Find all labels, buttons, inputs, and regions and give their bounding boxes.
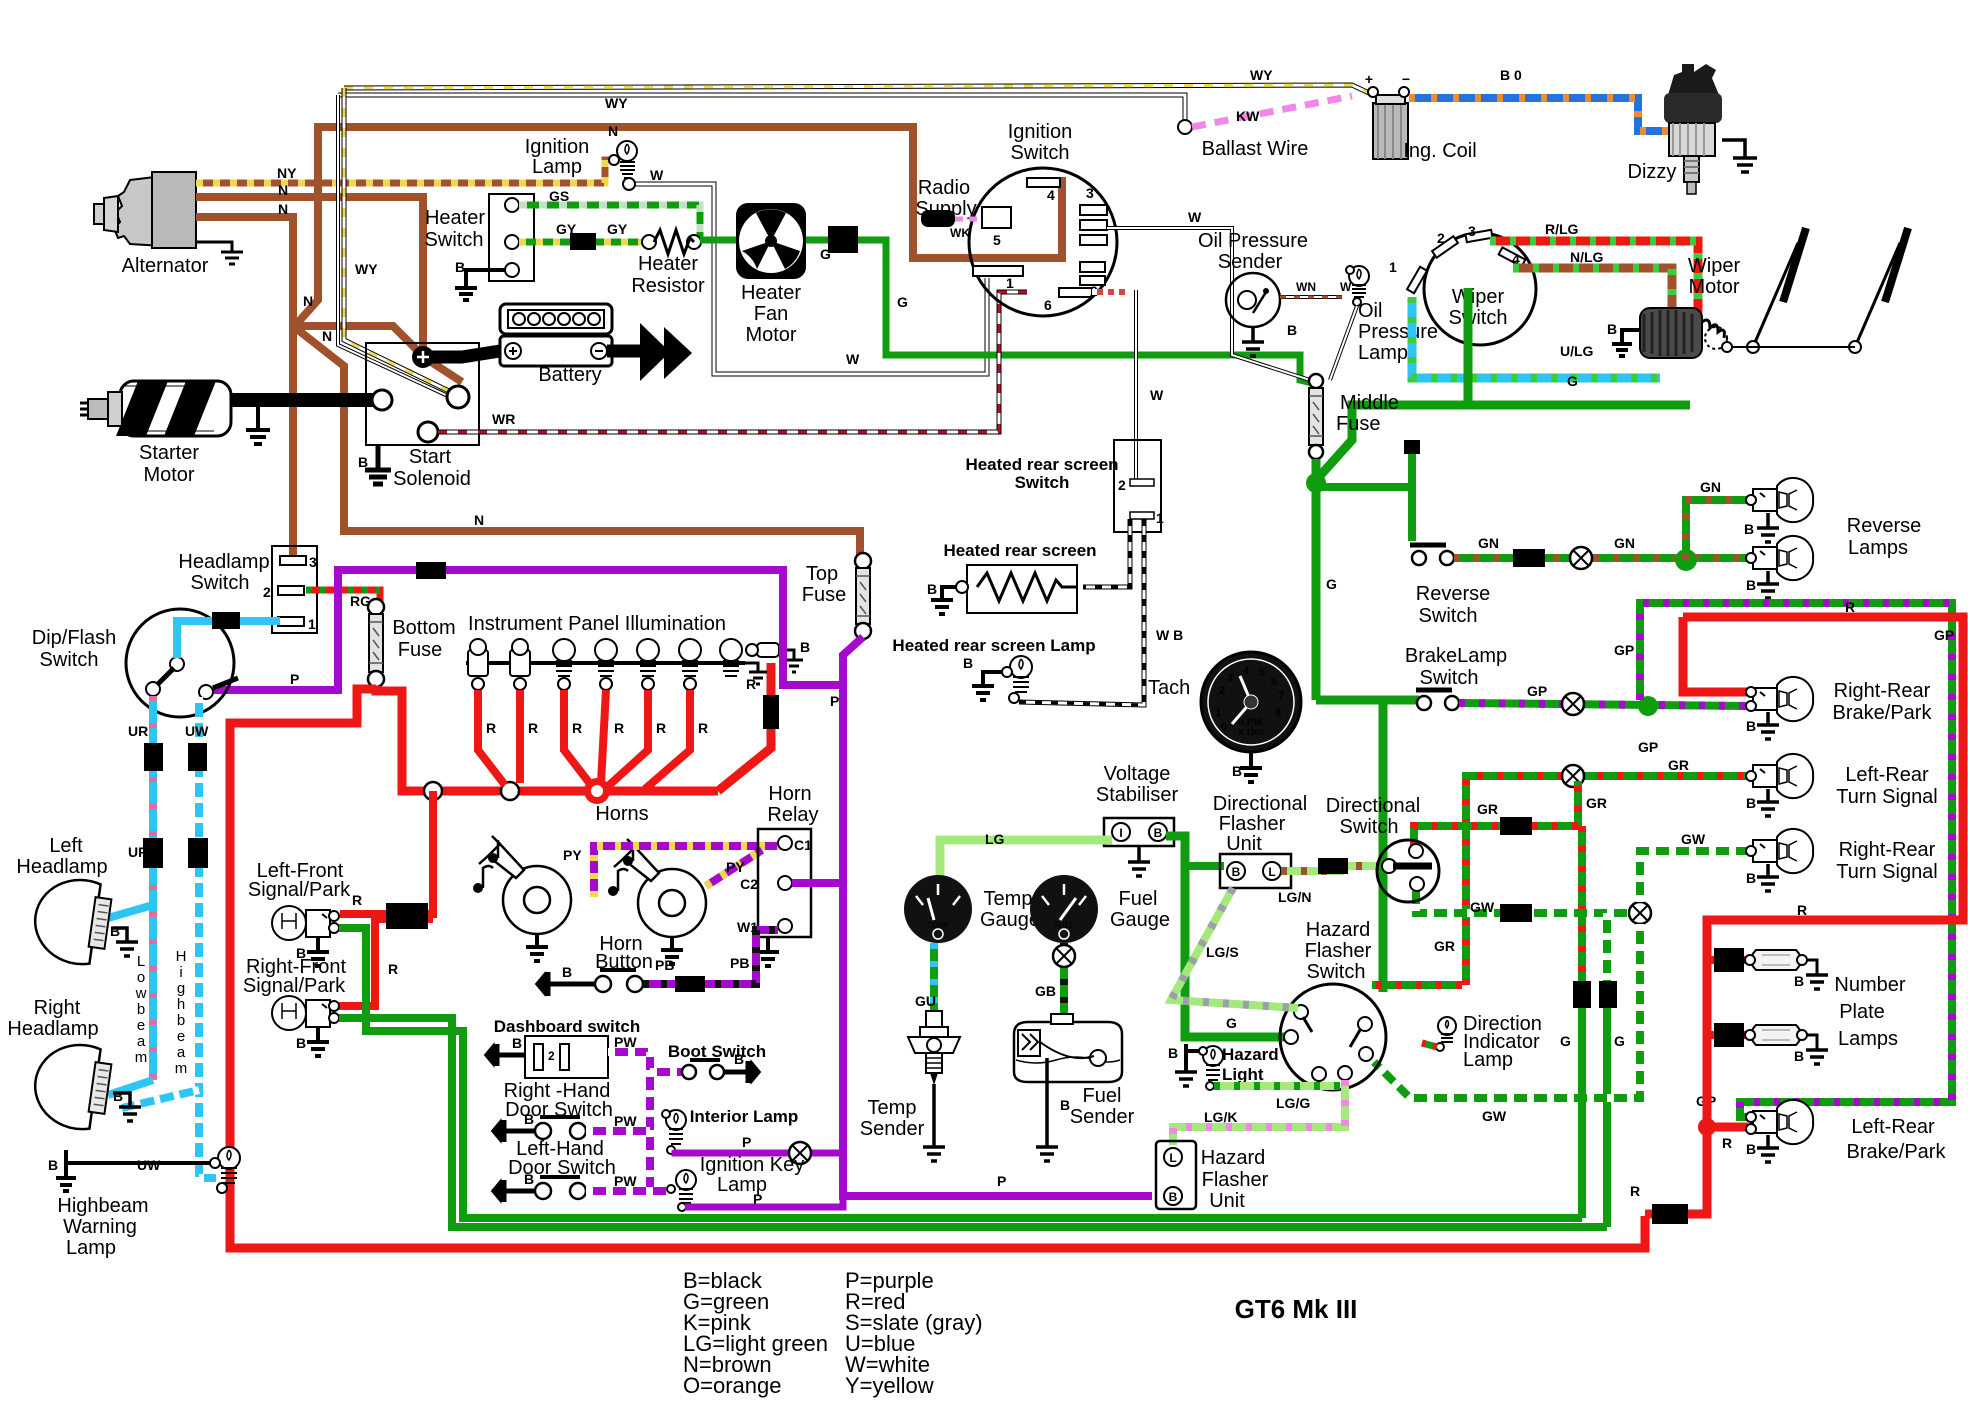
svg-text:Number: Number bbox=[1834, 974, 1905, 996]
svg-text:2: 2 bbox=[263, 584, 271, 600]
svg-text:GR: GR bbox=[1668, 757, 1689, 773]
svg-text:Temp: Temp bbox=[868, 1097, 917, 1119]
svg-text:Highbeam: Highbeam bbox=[57, 1195, 148, 1217]
svg-text:PB: PB bbox=[655, 957, 674, 973]
svg-text:GU: GU bbox=[915, 993, 936, 1009]
svg-text:B 0: B 0 bbox=[1500, 67, 1522, 83]
svg-text:R: R bbox=[528, 720, 538, 736]
svg-text:Ing. Coil: Ing. Coil bbox=[1403, 140, 1476, 162]
svg-text:WY: WY bbox=[605, 95, 628, 111]
svg-text:Reverse: Reverse bbox=[1847, 515, 1921, 537]
svg-text:Fuse: Fuse bbox=[1336, 413, 1380, 435]
svg-text:W: W bbox=[1188, 209, 1202, 225]
svg-text:Warning: Warning bbox=[63, 1216, 137, 1238]
svg-text:R: R bbox=[1797, 902, 1807, 918]
svg-text:N: N bbox=[303, 293, 313, 309]
svg-text:B: B bbox=[562, 964, 572, 980]
svg-text:B: B bbox=[1168, 1045, 1178, 1061]
svg-text:B: B bbox=[1232, 865, 1241, 879]
svg-text:R/LG: R/LG bbox=[1545, 221, 1579, 237]
svg-text:Heated rear screen: Heated rear screen bbox=[965, 455, 1118, 474]
svg-text:Switch: Switch bbox=[1449, 307, 1508, 329]
svg-text:WN: WN bbox=[1296, 280, 1316, 294]
svg-text:LG/N: LG/N bbox=[1278, 889, 1311, 905]
svg-text:R: R bbox=[388, 961, 398, 977]
svg-text:Reverse: Reverse bbox=[1416, 583, 1490, 605]
svg-text:Switch: Switch bbox=[425, 229, 484, 251]
svg-text:B: B bbox=[48, 1157, 58, 1173]
svg-text:Interior Lamp: Interior Lamp bbox=[690, 1107, 799, 1126]
svg-text:Hazard: Hazard bbox=[1306, 919, 1370, 941]
svg-text:Heater: Heater bbox=[638, 253, 698, 275]
svg-text:GB: GB bbox=[1035, 983, 1056, 999]
svg-text:8: 8 bbox=[1275, 707, 1281, 719]
svg-text:Instrument Panel Illumination: Instrument Panel Illumination bbox=[468, 613, 726, 635]
svg-text:Fan: Fan bbox=[754, 303, 788, 325]
svg-text:2: 2 bbox=[548, 1049, 555, 1063]
svg-text:Start: Start bbox=[409, 446, 452, 468]
svg-text:B: B bbox=[524, 1171, 534, 1187]
svg-text:Dizzy: Dizzy bbox=[1628, 161, 1677, 183]
svg-text:R: R bbox=[656, 720, 666, 736]
svg-text:G: G bbox=[820, 246, 831, 262]
svg-text:Motor: Motor bbox=[143, 464, 194, 486]
svg-text:R: R bbox=[1845, 599, 1855, 615]
svg-text:GR: GR bbox=[1434, 938, 1455, 954]
svg-text:3: 3 bbox=[1468, 223, 1476, 239]
svg-text:W B: W B bbox=[1156, 627, 1183, 643]
svg-text:Stabiliser: Stabiliser bbox=[1096, 784, 1179, 806]
svg-text:B: B bbox=[296, 1035, 306, 1051]
svg-text:R: R bbox=[698, 720, 708, 736]
svg-text:Directional: Directional bbox=[1213, 793, 1307, 815]
svg-text:Right-Rear: Right-Rear bbox=[1834, 680, 1931, 702]
svg-text:Hazard: Hazard bbox=[1222, 1045, 1279, 1064]
svg-text:N: N bbox=[278, 201, 288, 217]
svg-text:B: B bbox=[1746, 577, 1756, 593]
svg-text:0: 0 bbox=[1221, 721, 1227, 733]
svg-text:2: 2 bbox=[1219, 685, 1225, 697]
svg-text:X 1000: X 1000 bbox=[1238, 728, 1264, 737]
svg-text:P: P bbox=[997, 1173, 1006, 1189]
svg-text:B: B bbox=[110, 923, 120, 939]
svg-text:Resistor: Resistor bbox=[631, 275, 705, 297]
svg-text:Switch: Switch bbox=[1011, 142, 1070, 164]
svg-text:4: 4 bbox=[1047, 187, 1055, 203]
svg-text:R.P.M.: R.P.M. bbox=[1238, 717, 1264, 727]
svg-text:B: B bbox=[1287, 322, 1297, 338]
svg-text:N: N bbox=[322, 328, 332, 344]
svg-text:B: B bbox=[927, 581, 937, 597]
svg-text:R: R bbox=[572, 720, 582, 736]
svg-text:Signal/Park: Signal/Park bbox=[248, 879, 351, 901]
svg-text:Heated rear screen: Heated rear screen bbox=[943, 541, 1096, 560]
svg-text:B: B bbox=[512, 1035, 522, 1051]
svg-text:3: 3 bbox=[1086, 185, 1094, 201]
svg-text:Flasher: Flasher bbox=[1202, 1169, 1269, 1191]
svg-text:Turn Signal: Turn Signal bbox=[1836, 861, 1938, 883]
svg-text:G: G bbox=[1226, 1015, 1237, 1031]
svg-text:GN: GN bbox=[1478, 535, 1499, 551]
svg-text:1: 1 bbox=[1215, 707, 1221, 719]
svg-text:B: B bbox=[113, 1088, 123, 1104]
svg-text:GY: GY bbox=[607, 221, 628, 237]
svg-text:L: L bbox=[1268, 865, 1275, 879]
svg-text:3: 3 bbox=[1227, 672, 1233, 684]
svg-text:Headlamp: Headlamp bbox=[16, 856, 107, 878]
svg-text:W: W bbox=[846, 351, 860, 367]
svg-text:−: − bbox=[1402, 71, 1410, 87]
svg-text:Brake/Park: Brake/Park bbox=[1847, 1141, 1947, 1163]
svg-text:Switch: Switch bbox=[191, 572, 250, 594]
svg-text:B: B bbox=[1744, 521, 1754, 537]
svg-text:GS: GS bbox=[549, 188, 569, 204]
svg-text:Right: Right bbox=[34, 997, 81, 1019]
svg-text:GW: GW bbox=[1482, 1108, 1507, 1124]
svg-text:5: 5 bbox=[993, 232, 1001, 248]
svg-text:Battery: Battery bbox=[538, 364, 601, 386]
svg-text:Flasher: Flasher bbox=[1219, 813, 1286, 835]
svg-text:B: B bbox=[1232, 763, 1242, 779]
svg-text:LG/G: LG/G bbox=[1276, 1095, 1310, 1111]
svg-text:Voltage: Voltage bbox=[1104, 763, 1171, 785]
svg-text:Signal/Park: Signal/Park bbox=[243, 975, 346, 997]
svg-text:Unit: Unit bbox=[1209, 1190, 1245, 1212]
svg-text:Fuel: Fuel bbox=[1083, 1085, 1122, 1107]
svg-text:PB: PB bbox=[730, 955, 749, 971]
svg-text:Ignition: Ignition bbox=[525, 136, 590, 158]
svg-text:2: 2 bbox=[1118, 477, 1126, 493]
svg-text:Ignition Key: Ignition Key bbox=[700, 1154, 805, 1176]
svg-text:L: L bbox=[1169, 1151, 1176, 1165]
svg-text:B: B bbox=[1060, 1097, 1070, 1113]
svg-text:B: B bbox=[1794, 1048, 1804, 1064]
svg-text:Switch: Switch bbox=[1420, 667, 1479, 689]
svg-text:PY: PY bbox=[563, 847, 582, 863]
svg-text:C1: C1 bbox=[794, 837, 812, 853]
svg-text:Sender: Sender bbox=[1218, 251, 1283, 273]
svg-text:Switch: Switch bbox=[1340, 816, 1399, 838]
svg-text:G: G bbox=[1326, 576, 1337, 592]
svg-text:B: B bbox=[455, 259, 465, 275]
svg-text:GN: GN bbox=[1614, 535, 1635, 551]
svg-text:C2: C2 bbox=[740, 876, 758, 892]
svg-text:GP: GP bbox=[1527, 683, 1547, 699]
svg-text:Directional: Directional bbox=[1326, 795, 1420, 817]
svg-text:KW: KW bbox=[1236, 108, 1260, 124]
svg-text:PW: PW bbox=[614, 1113, 637, 1129]
svg-text:B: B bbox=[800, 639, 810, 655]
svg-text:Motor: Motor bbox=[745, 324, 796, 346]
svg-text:BrakeLamp: BrakeLamp bbox=[1405, 645, 1507, 667]
svg-text:Fuse: Fuse bbox=[802, 584, 846, 606]
svg-text:N: N bbox=[474, 512, 484, 528]
svg-text:UR: UR bbox=[128, 723, 148, 739]
svg-text:LG/S: LG/S bbox=[1206, 944, 1239, 960]
svg-text:R: R bbox=[746, 676, 756, 692]
svg-text:Plate: Plate bbox=[1839, 1001, 1885, 1023]
svg-text:Lamps: Lamps bbox=[1838, 1028, 1898, 1050]
svg-text:GR: GR bbox=[1586, 795, 1607, 811]
svg-text:PW: PW bbox=[614, 1173, 637, 1189]
svg-text:B: B bbox=[1746, 870, 1756, 886]
svg-text:P: P bbox=[290, 671, 299, 687]
svg-text:GP: GP bbox=[1934, 627, 1954, 643]
svg-text:Solenoid: Solenoid bbox=[393, 468, 471, 490]
svg-text:6: 6 bbox=[1044, 297, 1052, 313]
svg-text:Tach: Tach bbox=[1148, 677, 1190, 699]
svg-text:GP: GP bbox=[1614, 642, 1634, 658]
svg-text:B: B bbox=[1154, 826, 1163, 840]
svg-text:N: N bbox=[278, 182, 288, 198]
svg-text:B: B bbox=[734, 1051, 744, 1067]
svg-text:P: P bbox=[830, 693, 839, 709]
svg-text:G: G bbox=[1560, 1033, 1571, 1049]
svg-text:Sender: Sender bbox=[1070, 1106, 1135, 1128]
svg-text:GT6 Mk III: GT6 Mk III bbox=[1235, 1294, 1358, 1324]
svg-text:Left-Rear: Left-Rear bbox=[1845, 764, 1929, 786]
svg-text:B: B bbox=[1169, 1190, 1178, 1204]
svg-text:Hazard: Hazard bbox=[1201, 1147, 1265, 1169]
svg-text:GN: GN bbox=[1700, 479, 1721, 495]
svg-text:1: 1 bbox=[1389, 259, 1397, 275]
svg-text:P: P bbox=[742, 1134, 751, 1150]
svg-text:GY: GY bbox=[556, 221, 577, 237]
svg-text:I: I bbox=[1119, 826, 1122, 840]
svg-text:5: 5 bbox=[1259, 667, 1265, 679]
svg-text:Wiper: Wiper bbox=[1452, 286, 1505, 308]
svg-text:Oil Pressure: Oil Pressure bbox=[1198, 230, 1308, 252]
svg-text:WY: WY bbox=[1250, 67, 1273, 83]
svg-text:Dip/Flash: Dip/Flash bbox=[32, 627, 116, 649]
svg-text:Gauge: Gauge bbox=[1110, 909, 1170, 931]
svg-text:PY: PY bbox=[726, 859, 745, 875]
svg-text:Switch: Switch bbox=[1307, 961, 1366, 983]
svg-text:Light: Light bbox=[1222, 1065, 1264, 1084]
svg-text:Heater: Heater bbox=[425, 207, 485, 229]
svg-text:Wiper: Wiper bbox=[1688, 255, 1741, 277]
svg-text:B: B bbox=[524, 1111, 534, 1127]
svg-text:PW: PW bbox=[614, 1034, 637, 1050]
svg-text:Motor: Motor bbox=[1688, 276, 1739, 298]
svg-text:UW: UW bbox=[185, 723, 209, 739]
svg-text:O=orange: O=orange bbox=[683, 1373, 781, 1398]
svg-text:B: B bbox=[1794, 973, 1804, 989]
svg-text:GW: GW bbox=[1470, 899, 1495, 915]
svg-text:Pressure: Pressure bbox=[1358, 321, 1438, 343]
svg-text:Lowbeam: Lowbeam bbox=[133, 953, 150, 1065]
svg-text:Temp: Temp bbox=[984, 888, 1033, 910]
svg-text:Right-Rear: Right-Rear bbox=[1839, 839, 1936, 861]
svg-text:Relay: Relay bbox=[767, 804, 818, 826]
svg-text:Lamp: Lamp bbox=[532, 156, 582, 178]
svg-text:R: R bbox=[1630, 1183, 1640, 1199]
svg-text:WK: WK bbox=[950, 226, 970, 240]
svg-text:Y=yellow: Y=yellow bbox=[845, 1373, 934, 1398]
svg-text:GP: GP bbox=[1638, 739, 1658, 755]
svg-text:Heater: Heater bbox=[741, 282, 801, 304]
svg-text:Radio: Radio bbox=[918, 177, 970, 199]
svg-text:Ignition: Ignition bbox=[1008, 121, 1073, 143]
svg-text:Alternator: Alternator bbox=[122, 255, 209, 277]
svg-text:Bottom: Bottom bbox=[392, 617, 455, 639]
svg-text:Horn: Horn bbox=[768, 783, 811, 805]
svg-text:R: R bbox=[486, 720, 496, 736]
svg-text:1: 1 bbox=[1156, 510, 1164, 526]
svg-text:Starter: Starter bbox=[139, 442, 199, 464]
svg-text:LG: LG bbox=[985, 831, 1005, 847]
svg-text:B: B bbox=[1746, 795, 1756, 811]
svg-text:Left-Rear: Left-Rear bbox=[1851, 1116, 1935, 1138]
svg-text:Lamp: Lamp bbox=[1358, 342, 1408, 364]
svg-text:B: B bbox=[358, 454, 368, 470]
svg-text:Fuse: Fuse bbox=[398, 639, 442, 661]
svg-text:Switch: Switch bbox=[1015, 473, 1070, 492]
svg-text:GW: GW bbox=[1681, 831, 1706, 847]
svg-text:1: 1 bbox=[1006, 275, 1014, 291]
svg-text:Headlamp: Headlamp bbox=[178, 551, 269, 573]
svg-text:LG/K: LG/K bbox=[1204, 1109, 1237, 1125]
svg-text:Top: Top bbox=[806, 563, 838, 585]
svg-text:2: 2 bbox=[1437, 230, 1445, 246]
svg-text:N: N bbox=[608, 123, 618, 139]
svg-text:B: B bbox=[1607, 321, 1617, 337]
svg-text:Left: Left bbox=[49, 835, 83, 857]
svg-text:Headlamp: Headlamp bbox=[7, 1018, 98, 1040]
svg-text:Unit: Unit bbox=[1226, 833, 1262, 855]
svg-text:WY: WY bbox=[355, 261, 378, 277]
svg-text:W: W bbox=[1150, 387, 1164, 403]
svg-text:4: 4 bbox=[1243, 665, 1250, 677]
svg-text:Flasher: Flasher bbox=[1305, 940, 1372, 962]
svg-text:R: R bbox=[614, 720, 624, 736]
svg-text:Brake/Park: Brake/Park bbox=[1833, 702, 1933, 724]
svg-text:Fuel: Fuel bbox=[1119, 888, 1158, 910]
svg-text:Lamp: Lamp bbox=[1463, 1049, 1513, 1071]
svg-text:B: B bbox=[1746, 718, 1756, 734]
svg-text:Heated rear screen Lamp: Heated rear screen Lamp bbox=[892, 636, 1095, 655]
svg-text:Lamps: Lamps bbox=[1848, 537, 1908, 559]
svg-text:W: W bbox=[650, 167, 664, 183]
svg-text:+: + bbox=[1365, 71, 1373, 87]
svg-text:Highbeam: Highbeam bbox=[173, 948, 190, 1076]
svg-text:Horns: Horns bbox=[595, 803, 648, 825]
svg-text:GR: GR bbox=[1477, 801, 1498, 817]
svg-text:Switch: Switch bbox=[40, 649, 99, 671]
svg-text:WR: WR bbox=[492, 411, 515, 427]
svg-text:6: 6 bbox=[1271, 676, 1277, 688]
svg-text:N/LG: N/LG bbox=[1570, 249, 1604, 265]
svg-text:Middle: Middle bbox=[1340, 392, 1399, 414]
svg-text:B: B bbox=[1746, 1141, 1756, 1157]
svg-text:R: R bbox=[1722, 1135, 1732, 1151]
svg-text:G: G bbox=[897, 294, 908, 310]
svg-text:Lamp: Lamp bbox=[66, 1237, 116, 1259]
svg-text:7: 7 bbox=[1278, 690, 1284, 702]
svg-text:1: 1 bbox=[308, 616, 316, 632]
svg-text:G: G bbox=[1567, 373, 1578, 389]
svg-text:3: 3 bbox=[309, 554, 317, 570]
svg-text:Ballast Wire: Ballast Wire bbox=[1202, 138, 1309, 160]
svg-text:R: R bbox=[352, 892, 362, 908]
svg-text:Switch: Switch bbox=[1419, 605, 1478, 627]
svg-text:Oil: Oil bbox=[1358, 300, 1382, 322]
svg-text:UR: UR bbox=[128, 844, 148, 860]
svg-text:Sender: Sender bbox=[860, 1118, 925, 1140]
svg-text:G: G bbox=[1614, 1033, 1625, 1049]
svg-text:NY: NY bbox=[277, 165, 297, 181]
svg-text:Turn Signal: Turn Signal bbox=[1836, 786, 1938, 808]
svg-text:U/LG: U/LG bbox=[1560, 343, 1594, 359]
svg-text:B: B bbox=[963, 655, 973, 671]
